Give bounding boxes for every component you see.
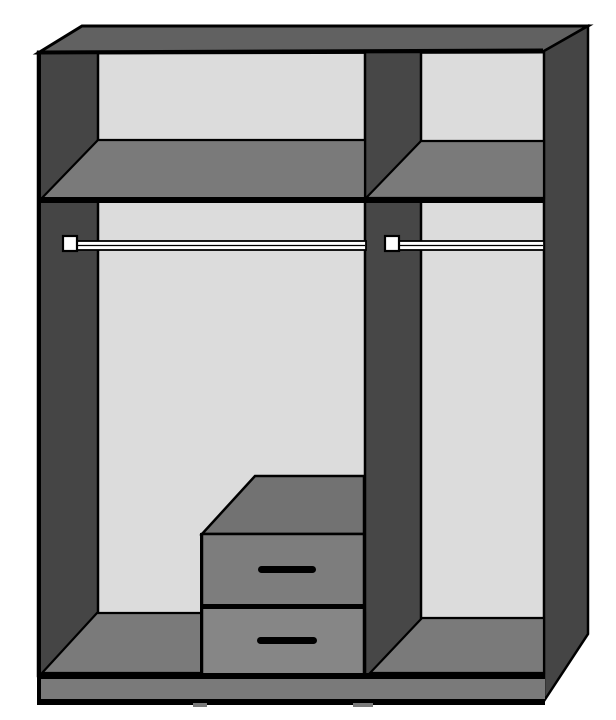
plinth-base [40, 676, 545, 702]
right-foot [353, 703, 373, 707]
center-divider-panel [365, 52, 421, 676]
right-rail-bracket [385, 236, 399, 251]
left-outer-edge [37, 52, 41, 705]
shelf-front-edge [38, 197, 545, 203]
lower-drawer-handle [257, 637, 317, 644]
left-side-panel [38, 52, 98, 676]
floor-front-edge [38, 673, 545, 679]
wardrobe-diagram [0, 0, 616, 720]
wardrobe-diagram-canvas [0, 0, 616, 720]
left-top-shelf [41, 140, 365, 199]
left-rail-bracket [63, 236, 77, 251]
left-foot [193, 703, 207, 707]
drawer-separator-edge [201, 604, 365, 609]
right-side-panel [544, 26, 588, 701]
upper-drawer-handle [258, 566, 316, 573]
bottom-front-edge [38, 699, 545, 705]
top-front-edge [37, 51, 543, 53]
